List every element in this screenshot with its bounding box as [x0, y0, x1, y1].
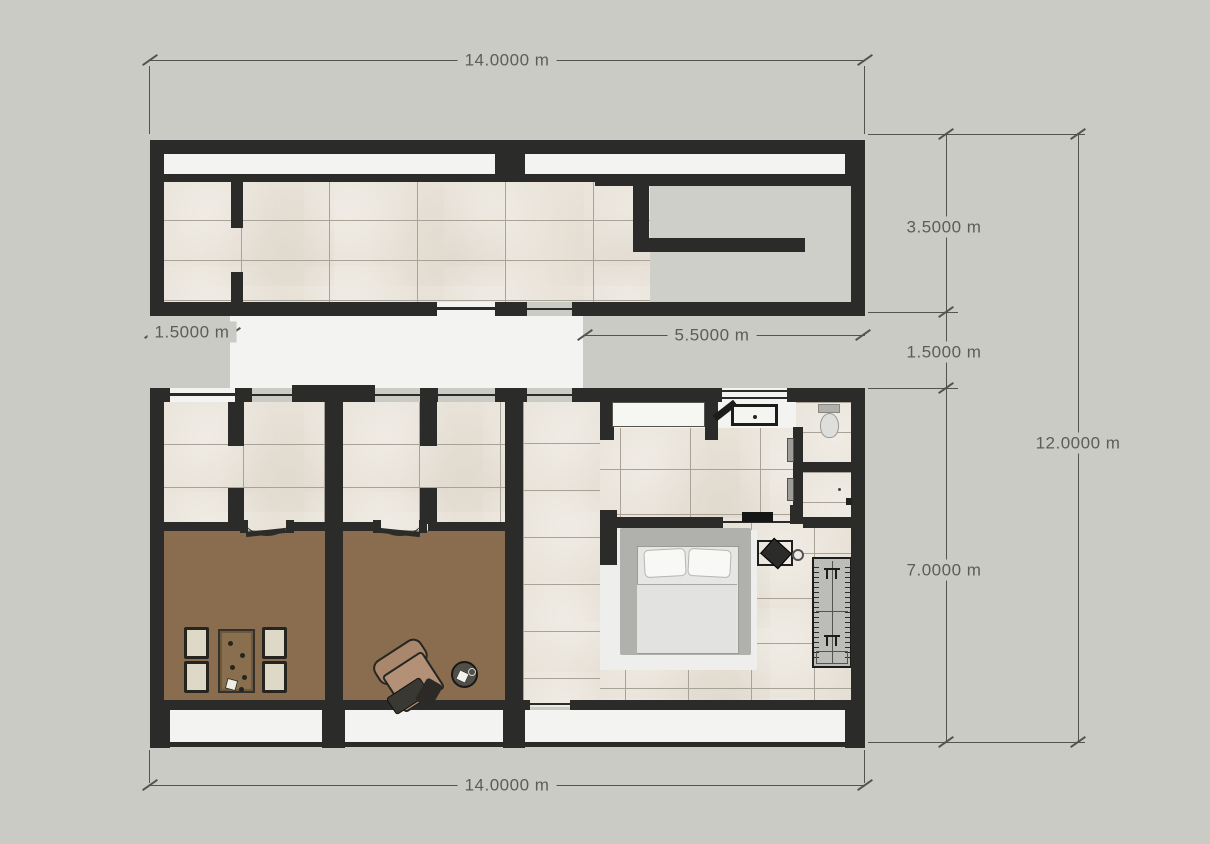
window-line	[170, 393, 235, 396]
wardrobe-drawer	[816, 651, 848, 664]
window-line	[437, 307, 495, 310]
wall-pillar	[495, 302, 527, 316]
dining-chair	[184, 627, 209, 659]
kitchen-sink	[731, 404, 778, 426]
wardrobe-rail-ticks	[845, 567, 850, 658]
wardrobe-shelf-line	[816, 611, 848, 612]
wall-pillar	[503, 700, 525, 748]
laptop-icon	[760, 538, 792, 570]
extension-line	[864, 750, 865, 783]
toilet-bowl	[820, 413, 839, 438]
door-threshold-line	[252, 394, 292, 396]
pillow	[643, 548, 686, 578]
bathroom-2-floor	[795, 472, 851, 520]
extension-line	[149, 750, 150, 783]
wall-segment	[803, 517, 851, 528]
wall-pillar	[150, 700, 170, 748]
wardrobe	[812, 557, 852, 668]
wall-pillar	[420, 388, 438, 402]
wall-segment	[164, 700, 530, 710]
wall-pillar	[150, 388, 170, 402]
extension-line	[868, 134, 1085, 135]
wall-segment	[790, 505, 803, 524]
drain-icon	[838, 488, 841, 491]
wall-stub	[231, 182, 243, 228]
dimension-label-bottom-width: 14.0000 m	[458, 775, 557, 796]
door-threshold-line	[375, 394, 420, 396]
pillow	[687, 548, 731, 578]
napkin-icon	[225, 678, 238, 691]
shower-fixture-icon	[846, 498, 852, 505]
door-leaf	[787, 478, 794, 501]
tableware-icon	[240, 653, 245, 658]
wardrobe-rail-ticks	[814, 567, 819, 658]
wall-segment	[600, 388, 722, 402]
wall-pillar	[322, 700, 345, 748]
tableware-icon	[242, 675, 247, 680]
door-leaf	[787, 438, 794, 462]
dining-chair	[184, 661, 209, 693]
tableware-icon	[228, 641, 233, 646]
wall-pillar	[495, 140, 525, 174]
dimension-label-porch-width: 1.5000 m	[148, 322, 237, 343]
kitchen-floor	[600, 427, 795, 518]
wall-pillar	[572, 388, 600, 402]
wall-stub	[228, 402, 244, 446]
corridor-floor	[523, 402, 600, 707]
dimension-label-lower-height: 7.0000 m	[900, 560, 989, 581]
wall-stub	[633, 176, 649, 240]
wall-segment	[164, 522, 240, 531]
tableware-icon	[239, 687, 244, 692]
wall-pillar	[845, 700, 865, 748]
window-marker	[160, 227, 164, 258]
wall-segment	[343, 522, 373, 531]
door-threshold-line	[527, 394, 572, 396]
wall-segment	[325, 388, 343, 710]
door-threshold-line	[530, 703, 570, 705]
hanger-icon	[823, 564, 841, 580]
wall-segment	[633, 238, 805, 252]
door-threshold-line	[438, 394, 495, 396]
dimension-label-gap-height: 1.5000 m	[900, 342, 989, 363]
wall-segment	[614, 517, 723, 528]
extension-line	[868, 742, 1085, 743]
wall-segment	[293, 522, 325, 531]
dining-chair	[262, 627, 287, 659]
tableware-icon	[230, 665, 235, 670]
extension-line	[864, 66, 865, 134]
bed	[620, 528, 751, 655]
unit-a-hall-floor	[164, 402, 325, 531]
nightstand	[757, 540, 793, 566]
wall-stub	[420, 488, 437, 524]
faucet-icon	[750, 405, 760, 407]
clock-icon	[792, 549, 804, 561]
dimension-label-top-width: 14.0000 m	[458, 50, 557, 71]
duvet	[637, 584, 737, 653]
floor-plan-canvas: 14.0000 m 14.0000 m 3.5000 m 1.5000 m 7.…	[0, 0, 1210, 844]
dimension-label-upper-height: 3.5000 m	[900, 217, 989, 238]
kitchen-counter	[612, 402, 705, 427]
dining-table	[218, 629, 255, 693]
sink-drain-icon	[753, 415, 757, 419]
balcony-edge	[150, 742, 865, 747]
wall-pillar	[235, 388, 252, 402]
wall-segment	[150, 388, 164, 745]
wall-segment	[851, 388, 865, 745]
wall-segment	[505, 388, 523, 710]
dimension-label-overall-height: 12.0000 m	[1029, 433, 1128, 454]
window-marker	[160, 488, 164, 526]
walkway-floor	[230, 316, 583, 388]
extension-line	[149, 66, 150, 134]
wall-segment	[795, 462, 865, 472]
wall-stub	[231, 272, 243, 302]
wall-pillar	[845, 140, 865, 174]
dimension-label-clearance-width: 5.5000 m	[668, 325, 757, 346]
side-table	[451, 661, 478, 688]
wall-stub	[228, 488, 244, 524]
window-line	[722, 390, 787, 392]
door-threshold-line	[527, 308, 572, 310]
window-line	[722, 397, 787, 399]
wall-segment	[787, 388, 865, 402]
tv	[742, 512, 773, 522]
dining-chair	[262, 661, 287, 693]
wall-segment	[428, 522, 505, 531]
wall-segment	[572, 302, 865, 316]
wall-segment	[570, 700, 851, 710]
hanger-icon	[823, 631, 841, 647]
toilet-tank	[818, 404, 840, 413]
wall-stub	[420, 402, 437, 446]
wall-segment	[150, 302, 437, 316]
cup-icon	[468, 668, 476, 676]
